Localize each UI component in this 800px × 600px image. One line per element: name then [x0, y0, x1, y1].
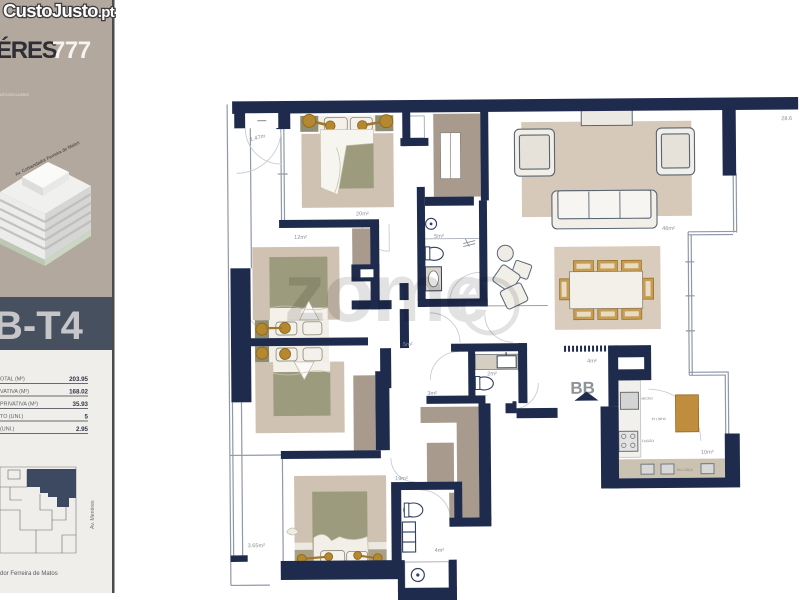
svg-text:4m²: 4m²: [435, 548, 445, 554]
svg-text:168.02: 168.02: [69, 389, 88, 396]
svg-text:5m²: 5m²: [434, 234, 444, 240]
svg-text:5: 5: [85, 414, 89, 421]
svg-text:19m²: 19m²: [395, 476, 408, 482]
svg-text:5m²: 5m²: [403, 342, 413, 348]
svg-text:zome: zome: [284, 246, 488, 339]
svg-text:IH LINHA: IH LINHA: [652, 417, 667, 421]
svg-text:3.65m²: 3.65m²: [248, 543, 266, 549]
svg-text:dor Ferreira de Matos: dor Ferreira de Matos: [0, 571, 58, 577]
svg-text:46m²: 46m²: [662, 226, 675, 232]
svg-text:(UNI.): (UNI.): [0, 427, 15, 433]
svg-text:777: 777: [52, 37, 91, 64]
svg-text:MICRO: MICRO: [641, 397, 653, 401]
svg-text:ÉRES: ÉRES: [0, 36, 58, 64]
svg-text:3m²: 3m²: [427, 391, 437, 397]
svg-text:CustoJusto.pt: CustoJusto.pt: [3, 0, 115, 21]
svg-text:2.95: 2.95: [76, 426, 89, 433]
svg-text:12m²: 12m²: [294, 235, 307, 241]
svg-text:PRIVATIVA (M²): PRIVATIVA (M²): [0, 402, 38, 408]
svg-text:28.6: 28.6: [781, 116, 792, 122]
svg-text:VATIVA (M²): VATIVA (M²): [0, 389, 29, 395]
svg-text:4m²: 4m²: [587, 359, 597, 365]
svg-text:2m²: 2m²: [487, 371, 497, 377]
svg-text:M.L.LOIÇA: M.L.LOIÇA: [677, 468, 694, 472]
svg-text:35.93: 35.93: [73, 401, 89, 408]
svg-text:NTO EXCLUSIVO: NTO EXCLUSIVO: [0, 93, 29, 97]
svg-text:FOGÃO: FOGÃO: [642, 438, 655, 443]
svg-text:Av. Menéres: Av. Menéres: [90, 500, 96, 529]
svg-text:20m²: 20m²: [356, 211, 369, 217]
svg-text:203.95: 203.95: [69, 376, 88, 383]
svg-text:TO (UNI.): TO (UNI.): [0, 414, 23, 420]
svg-text:10m²: 10m²: [701, 450, 714, 456]
svg-text:OTAL (M²): OTAL (M²): [0, 377, 25, 383]
svg-text:B-T4: B-T4: [0, 304, 84, 348]
